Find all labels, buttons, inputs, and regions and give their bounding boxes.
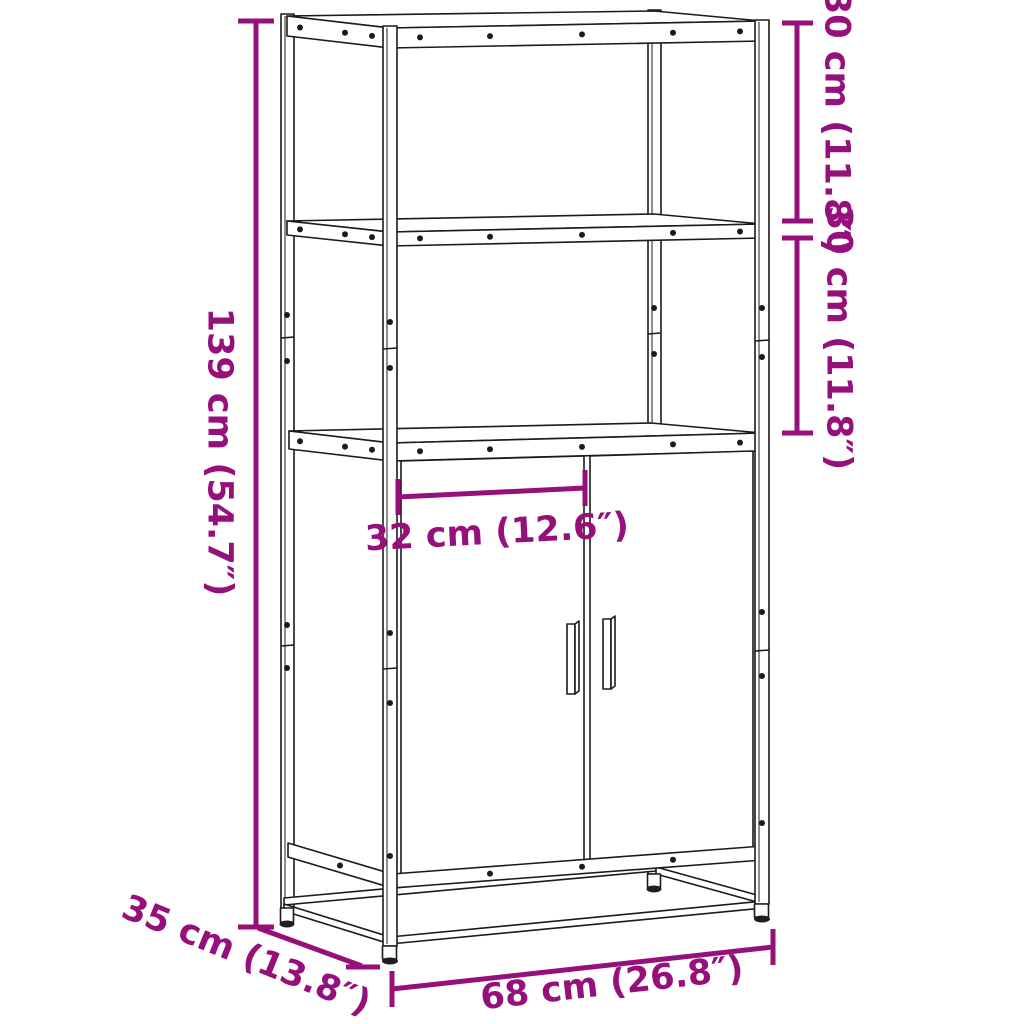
left-door-handle: [567, 621, 579, 694]
middle-shelf-dimension-line: [782, 238, 813, 433]
upper-shelf: [287, 214, 762, 246]
top-frame: [287, 11, 762, 48]
product-dimension-diagram: 139 cm (54.7″) 30 cm (11.8″) 30 cm (11.8…: [0, 0, 1024, 1024]
top-shelf-dimension-line: [782, 23, 813, 221]
dimension-label-height: 139 cm (54.7″): [202, 308, 237, 597]
dimension-label-middle-shelf: 30 cm (11.8″): [821, 206, 856, 470]
right-door-handle: [603, 616, 615, 689]
feet: [280, 874, 771, 965]
height-dimension-line: [238, 21, 274, 927]
